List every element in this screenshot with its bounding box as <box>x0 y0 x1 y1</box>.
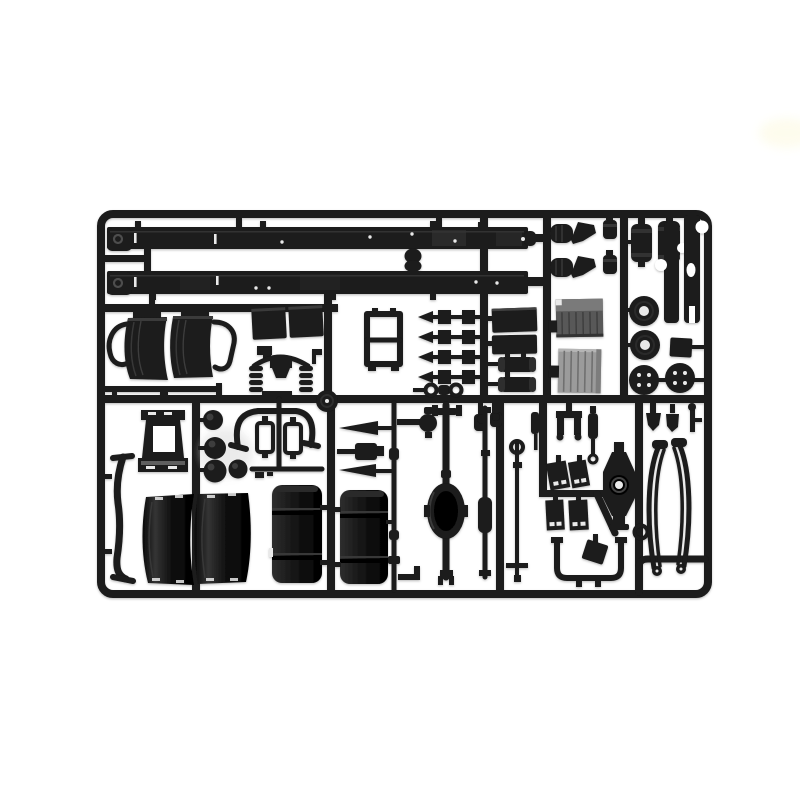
wheel-arch-assembly <box>109 310 234 380</box>
corner-bracket <box>312 349 322 364</box>
steering-knuckle <box>397 407 437 438</box>
torque-rods <box>337 421 393 477</box>
pulley-disc <box>316 390 338 412</box>
mufflers <box>488 352 536 392</box>
fender-halves <box>142 493 250 585</box>
fork-brackets <box>646 403 702 432</box>
square-plate <box>669 337 704 357</box>
hub-discs <box>627 296 660 360</box>
shackle-yoke <box>556 403 582 441</box>
drag-link <box>506 441 528 582</box>
grille-lower <box>549 348 602 393</box>
equipment-panels <box>487 307 537 354</box>
backdrop-smudge <box>759 118 800 148</box>
product-photo <box>0 0 800 800</box>
drum-discs <box>629 363 704 395</box>
axle-spring-assembly <box>249 356 313 395</box>
long-rod <box>388 403 420 590</box>
engine-mounts <box>544 222 596 278</box>
small-cylinders <box>603 215 617 274</box>
grille-upper <box>548 299 604 338</box>
link-rings <box>413 385 462 396</box>
cab-tower <box>138 410 188 472</box>
spring-bar <box>478 407 492 577</box>
small-plate <box>581 534 608 565</box>
side-bracket <box>103 456 133 581</box>
manifold-rods <box>418 310 482 384</box>
radiator-frame <box>367 308 400 371</box>
sprue-illustration <box>0 0 800 800</box>
